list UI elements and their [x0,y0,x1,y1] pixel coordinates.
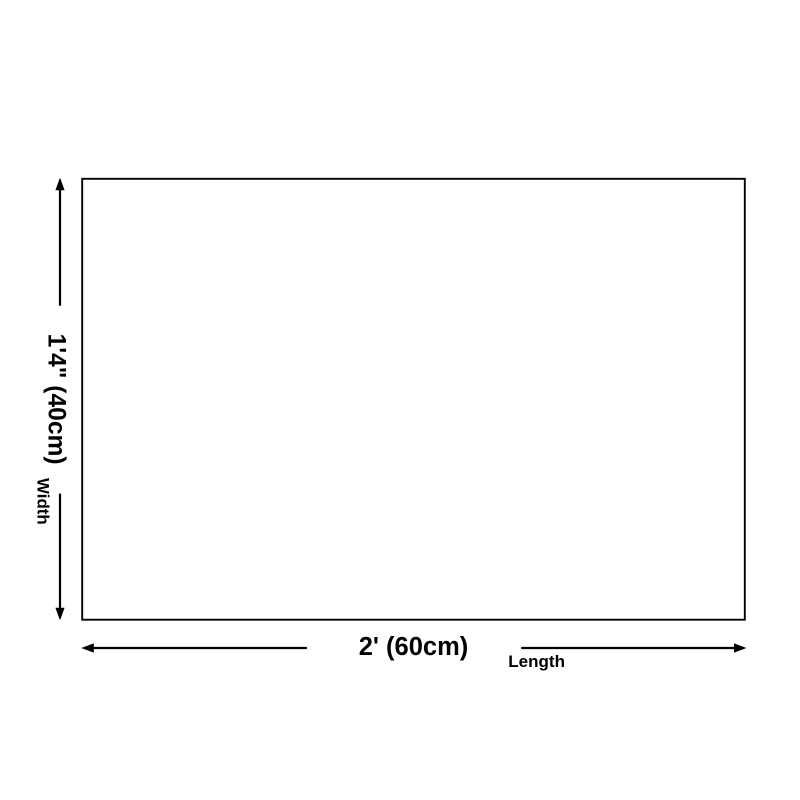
svg-text:Length: Length [508,652,565,671]
svg-text:2' (60cm): 2' (60cm) [359,633,469,661]
svg-text:Width: Width [34,478,53,525]
svg-text:1'4" (40cm): 1'4" (40cm) [43,334,70,465]
